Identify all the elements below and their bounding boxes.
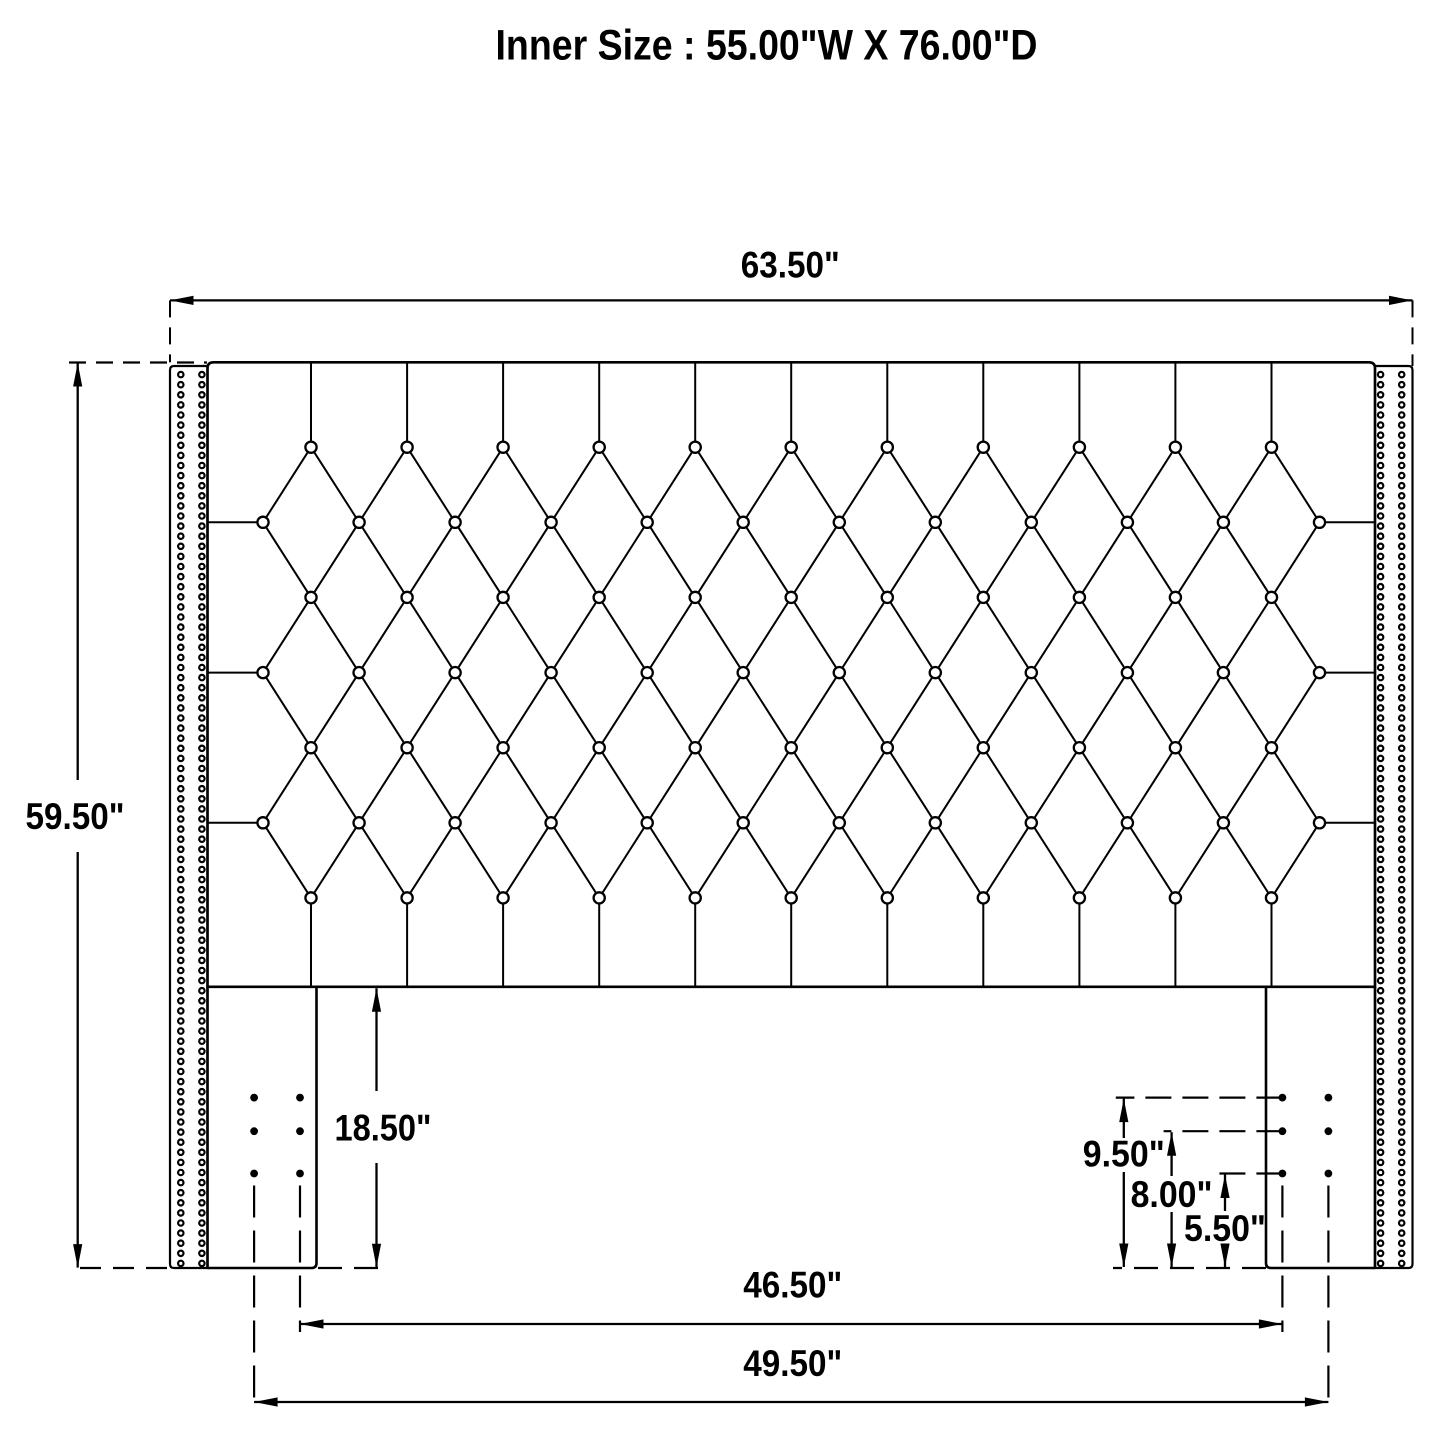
svg-text:18.50": 18.50" — [335, 1108, 432, 1149]
svg-text:5.50": 5.50" — [1184, 1208, 1266, 1249]
svg-text:59.50": 59.50" — [26, 796, 125, 837]
svg-text:Inner Size : 55.00"W X 76.00"D: Inner Size : 55.00"W X 76.00"D — [496, 22, 1038, 70]
svg-text:46.50": 46.50" — [743, 1265, 842, 1306]
svg-text:63.50": 63.50" — [741, 245, 840, 286]
svg-text:49.50": 49.50" — [743, 1343, 842, 1384]
svg-text:9.50": 9.50" — [1083, 1134, 1165, 1175]
